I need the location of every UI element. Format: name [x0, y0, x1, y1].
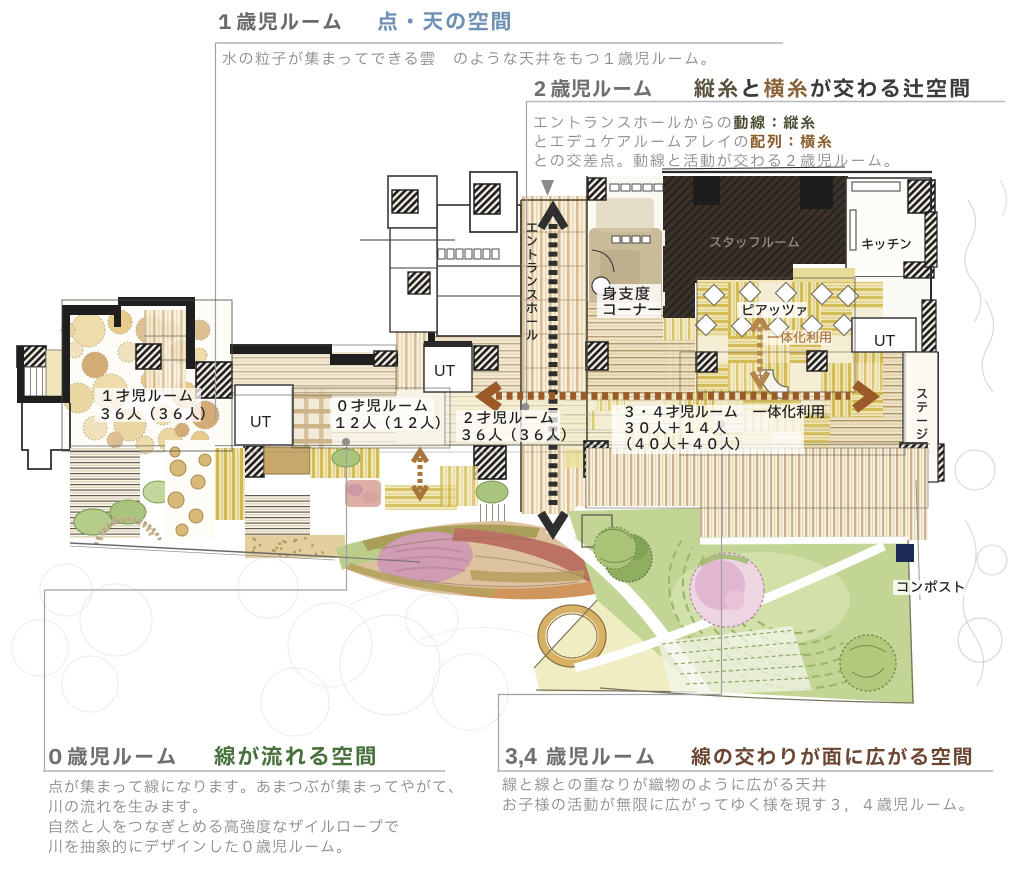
svg-text:UT: UT [434, 363, 456, 380]
svg-text:3,4: 3,4 [505, 743, 537, 769]
svg-text:UT: UT [874, 333, 896, 350]
svg-text:UT: UT [250, 414, 272, 431]
